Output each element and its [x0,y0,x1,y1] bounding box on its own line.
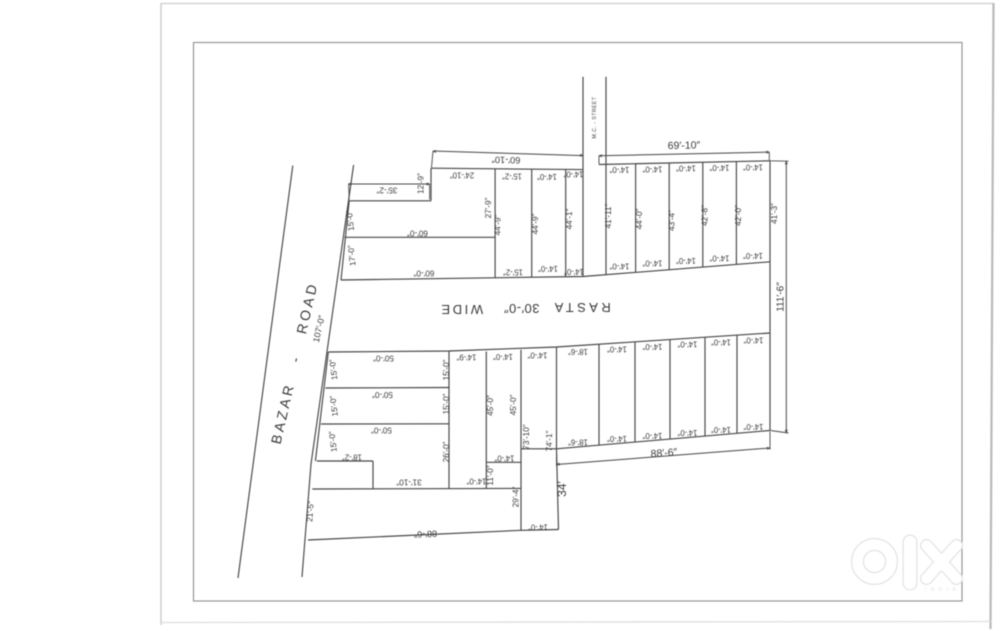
svg-text:24′-10″: 24′-10″ [450,171,474,180]
svg-text:18′-6″: 18′-6″ [568,437,588,446]
svg-text:14′-0″: 14′-0″ [743,422,763,431]
svg-text:60′-10″: 60′-10″ [491,154,521,165]
svg-text:14′-0″: 14′-0″ [642,259,662,268]
svg-text:18′-6″: 18′-6″ [568,347,588,356]
svg-text:14′-9″: 14′-9″ [456,353,476,362]
svg-text:50′-0″: 50′-0″ [373,354,394,363]
svg-text:14′-0″: 14′-0″ [609,165,629,174]
svg-text:15′-2″: 15′-2″ [502,171,522,180]
svg-text:14′-0″: 14′-0″ [642,164,662,173]
svg-text:14′-0″: 14′-0″ [711,338,731,347]
svg-text:14′-0″: 14′-0″ [563,170,583,179]
svg-text:44′-1″: 44′-1″ [565,208,574,229]
svg-text:14′-0″: 14′-0″ [743,162,763,171]
svg-text:14′-0″: 14′-0″ [607,434,627,443]
svg-text:14′-0″: 14′-0″ [494,453,514,462]
svg-text:14′-0″: 14′-0″ [743,251,763,260]
svg-text:111′-6″: 111′-6″ [775,282,786,312]
svg-text:42′-8″: 42′-8″ [700,205,709,226]
svg-text:14′-0″: 14′-0″ [564,267,584,276]
svg-text:29′-4″: 29′-4″ [511,486,520,507]
svg-text:14′-0″: 14′-0″ [676,164,696,173]
svg-text:44′-9″: 44′-9″ [531,213,540,234]
svg-text:14′-0″: 14′-0″ [642,342,662,351]
svg-text:34′: 34′ [555,480,569,496]
svg-text:M.C. - STREET: M.C. - STREET [592,97,598,139]
svg-text:14′-0″: 14′-0″ [607,344,627,353]
svg-text:14′-0″: 14′-0″ [709,254,729,263]
svg-text:35′-2″: 35′-2″ [376,186,397,195]
svg-text:50′-0″: 50′-0″ [372,390,393,399]
svg-text:14′-0″: 14′-0″ [528,523,548,532]
svg-text:15′-0″: 15′-0″ [442,359,451,380]
svg-text:14′-0″: 14′-0″ [677,428,697,437]
svg-text:27′-9″: 27′-9″ [484,197,493,218]
svg-text:88′-6″: 88′-6″ [413,529,437,540]
svg-text:14′-0″: 14′-0″ [609,261,629,270]
svg-text:88′-6″: 88′-6″ [650,446,678,460]
svg-text:I N D I A: I N D I A [925,587,958,593]
svg-text:50′-0″: 50′-0″ [371,426,392,435]
svg-text:14′-0″: 14′-0″ [538,264,558,273]
svg-text:14′-0″: 14′-0″ [466,477,486,486]
svg-text:69′-10″: 69′-10″ [668,139,701,152]
svg-text:14′-0″: 14′-0″ [677,340,697,349]
svg-text:42′-0″: 42′-0″ [734,205,743,226]
svg-text:14′-0″: 14′-0″ [711,425,731,434]
svg-text:43′-4″: 43′-4″ [667,210,676,231]
svg-text:14′-0″: 14′-0″ [743,335,763,344]
svg-text:14′-0″: 14′-0″ [709,163,729,172]
svg-text:18′-2″: 18′-2″ [342,453,362,462]
svg-text:60′-0″: 60′-0″ [413,269,434,278]
svg-text:14′-0″: 14′-0″ [537,172,557,181]
svg-text:60′-0″: 60′-0″ [407,229,428,238]
svg-text:14′-0″: 14′-0″ [642,431,662,440]
svg-text:31′-10″: 31′-10″ [396,478,421,487]
svg-text:RASTA: RASTA [551,300,610,315]
svg-text:21′-5″: 21′-5″ [305,501,315,522]
svg-text:15′-0″: 15′-0″ [442,393,451,414]
svg-text:12′-9″: 12′-9″ [417,173,426,194]
svg-text:26′-0″: 26′-0″ [442,441,451,462]
svg-text:WIDE: WIDE [439,302,483,317]
svg-text:44′-0″: 44′-0″ [635,208,644,229]
svg-text:44′-9″: 44′-9″ [494,214,503,235]
svg-text:41′-11″: 41′-11″ [604,204,613,229]
svg-text:14′-0″: 14′-0″ [527,351,547,360]
svg-text:11′-0″: 11′-0″ [486,465,495,485]
svg-text:73′-10″: 73′-10″ [522,424,531,449]
svg-text:30′-0″: 30′-0″ [503,301,539,316]
svg-text:15′-2″: 15′-2″ [503,268,523,277]
svg-text:45′-0″: 45′-0″ [486,395,495,416]
svg-text:41′-3″: 41′-3″ [770,203,779,224]
svg-text:14′-0″: 14′-0″ [676,256,696,265]
svg-text:74′-1″: 74′-1″ [545,430,554,451]
svg-text:14′-0″: 14′-0″ [493,352,513,361]
svg-text:45′-0″: 45′-0″ [509,394,518,415]
